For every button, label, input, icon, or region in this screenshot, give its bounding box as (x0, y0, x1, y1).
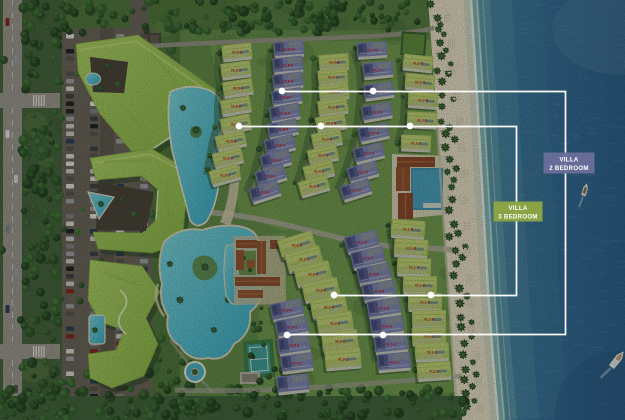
svg-text:2 BEDROOM: 2 BEDROOM (549, 165, 589, 172)
svg-text:VILLA: VILLA (508, 205, 527, 212)
svg-text:VILLA: VILLA (559, 157, 578, 164)
svg-text:3 BEDROOM: 3 BEDROOM (498, 214, 538, 221)
